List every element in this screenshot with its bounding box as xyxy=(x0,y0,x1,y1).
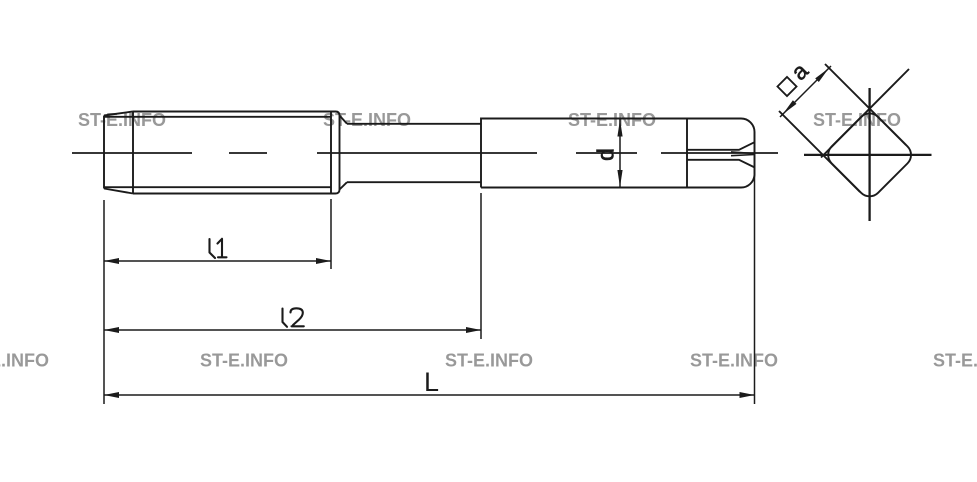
svg-text:L: L xyxy=(424,367,439,397)
svg-text:ST-E.INFO: ST-E.INFO xyxy=(568,110,656,130)
svg-text:ST-E.INFO: ST-E.INFO xyxy=(0,351,49,371)
svg-text:ST-E.INFO: ST-E.INFO xyxy=(200,351,288,371)
svg-text:d: d xyxy=(593,148,619,161)
svg-text:ST-E.INFO: ST-E.INFO xyxy=(445,351,533,371)
svg-text:ST-E.INFO: ST-E.INFO xyxy=(933,351,977,371)
svg-text:ST-E.INFO: ST-E.INFO xyxy=(690,351,778,371)
svg-text:ST-E.INFO: ST-E.INFO xyxy=(323,110,411,130)
